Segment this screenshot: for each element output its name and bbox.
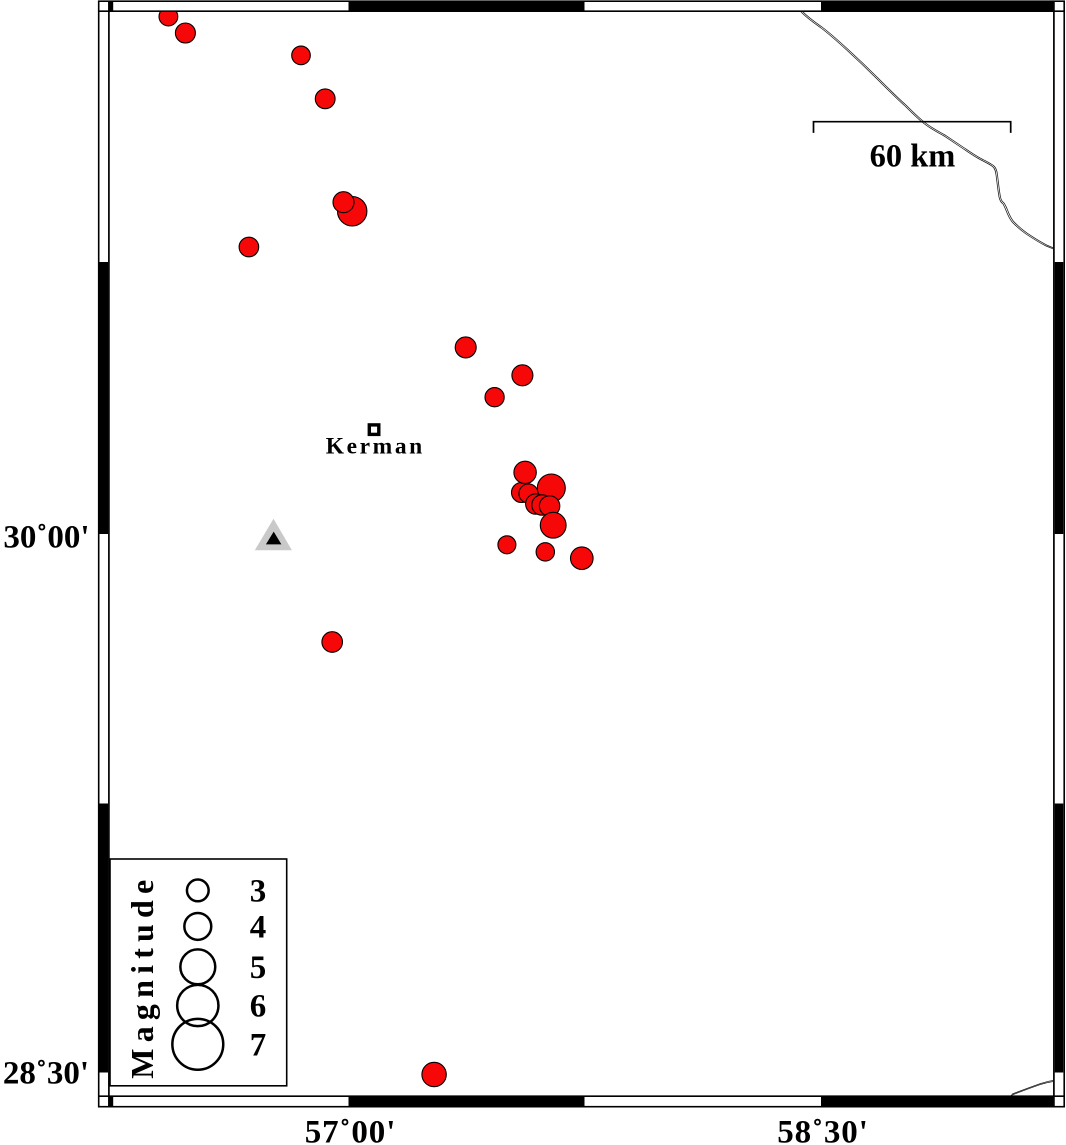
svg-text:4: 4: [250, 909, 267, 945]
svg-text:6: 6: [250, 989, 267, 1025]
svg-text:58˚30': 58˚30': [777, 1115, 869, 1145]
svg-text:5: 5: [250, 950, 267, 986]
svg-text:Magnitude: Magnitude: [124, 874, 160, 1079]
svg-text:60 km: 60 km: [870, 138, 956, 174]
svg-text:57˚00': 57˚00': [305, 1115, 397, 1145]
svg-text:7: 7: [250, 1027, 267, 1063]
svg-text:28˚30': 28˚30': [3, 1056, 89, 1092]
svg-text:3: 3: [250, 873, 267, 909]
svg-text:Kerman: Kerman: [326, 434, 425, 460]
svg-text:30˚00': 30˚00': [3, 520, 89, 556]
